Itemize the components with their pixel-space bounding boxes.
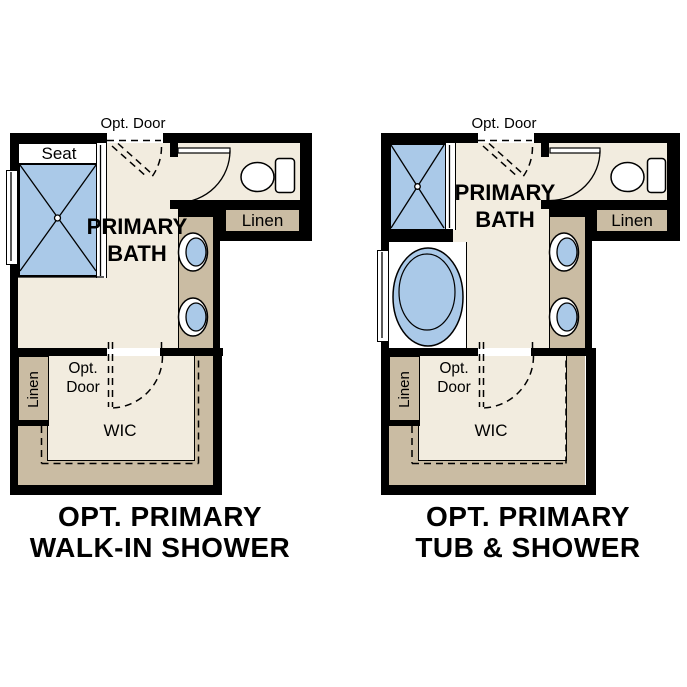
wic-opt-door-line1: Opt. [427,359,481,378]
wall-mid-right [531,348,596,356]
linen-closet-side: Linen [389,356,420,422]
tub-alcove [389,242,467,348]
linen-closet-top: Linen [595,209,669,233]
wic-opt-door-line2: Door [427,378,481,397]
wic-opt-door-label: Opt. Door [427,359,481,397]
wall-wic-right [586,350,596,495]
linen-side-label: Linen [396,371,413,408]
shower-pan [389,143,450,234]
primary-bath-label: PRIMARY BATH [443,179,567,233]
plan-tub-shower: Linen Linen Opt. Door PRIMARY BATH Opt. … [0,0,687,687]
wall-wing-right [667,133,680,241]
floorplan-canvas: Seat Linen Linen Opt. Door PRIMARY BATH … [0,0,687,687]
vanity-counter [549,217,586,348]
wic-label: WIC [466,421,516,441]
wall-bottom [381,485,596,495]
primary-bath-line1: PRIMARY [443,179,567,206]
wall-door-stub [541,133,549,157]
window-left [377,250,389,342]
wall-linen-left [585,209,597,231]
linen-side-wall-stub [389,420,420,426]
linen-label: Linen [611,211,653,231]
wall-mid-left [381,348,478,356]
plan-title-tub-shower: OPT. PRIMARY TUB & SHOWER [375,501,681,563]
wall-linen-bottom [585,231,680,241]
opt-door-top-label: Opt. Door [462,115,546,133]
title-line2: TUB & SHOWER [375,532,681,563]
wall-top-left [381,133,478,143]
wall-top-right [534,133,680,143]
primary-bath-line2: BATH [443,206,567,233]
title-line1: OPT. PRIMARY [375,501,681,532]
